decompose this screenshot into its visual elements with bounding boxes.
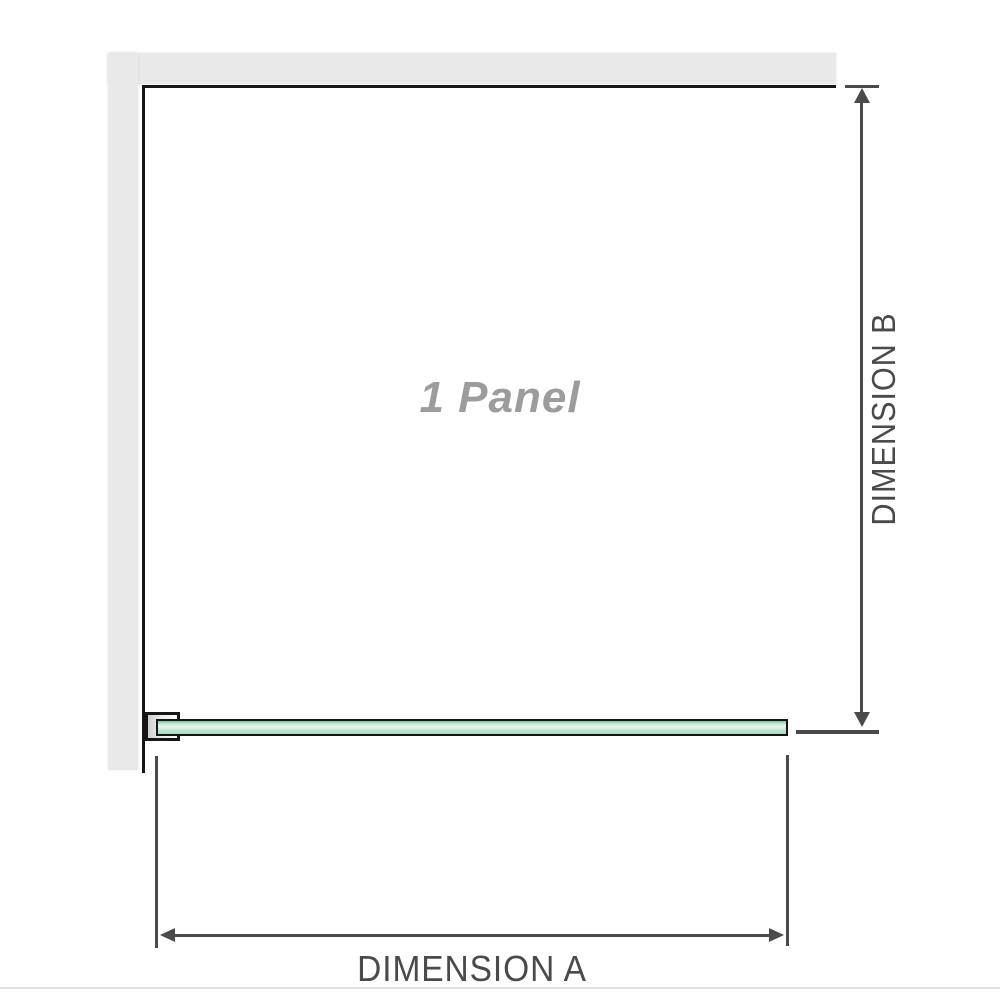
wall-top — [108, 53, 836, 84]
dimension-b-bottom-tick — [796, 730, 879, 734]
shower-screen-dimension-diagram: 1 Panel DIMENSION B DIMENSION A — [0, 0, 1000, 1000]
wall-edge-horizontal — [142, 85, 836, 88]
arrow-right-icon — [769, 928, 784, 942]
panel-count-label: 1 Panel — [419, 373, 580, 423]
dimension-a-line — [172, 934, 772, 937]
arrow-up-icon — [854, 88, 870, 103]
dimension-a-label: DIMENSION A — [357, 948, 587, 990]
dimension-a-left-extension — [155, 756, 158, 948]
image-edge-rule — [0, 987, 1000, 989]
wall-edge-vertical — [142, 85, 145, 773]
dimension-b-line — [860, 100, 863, 715]
dimension-a-right-extension — [786, 755, 789, 946]
arrow-down-icon — [854, 712, 870, 727]
wall-left — [108, 53, 138, 770]
arrow-left-icon — [160, 928, 175, 942]
glass-panel — [156, 719, 788, 736]
dimension-b-label: DIMENSION B — [865, 312, 903, 525]
